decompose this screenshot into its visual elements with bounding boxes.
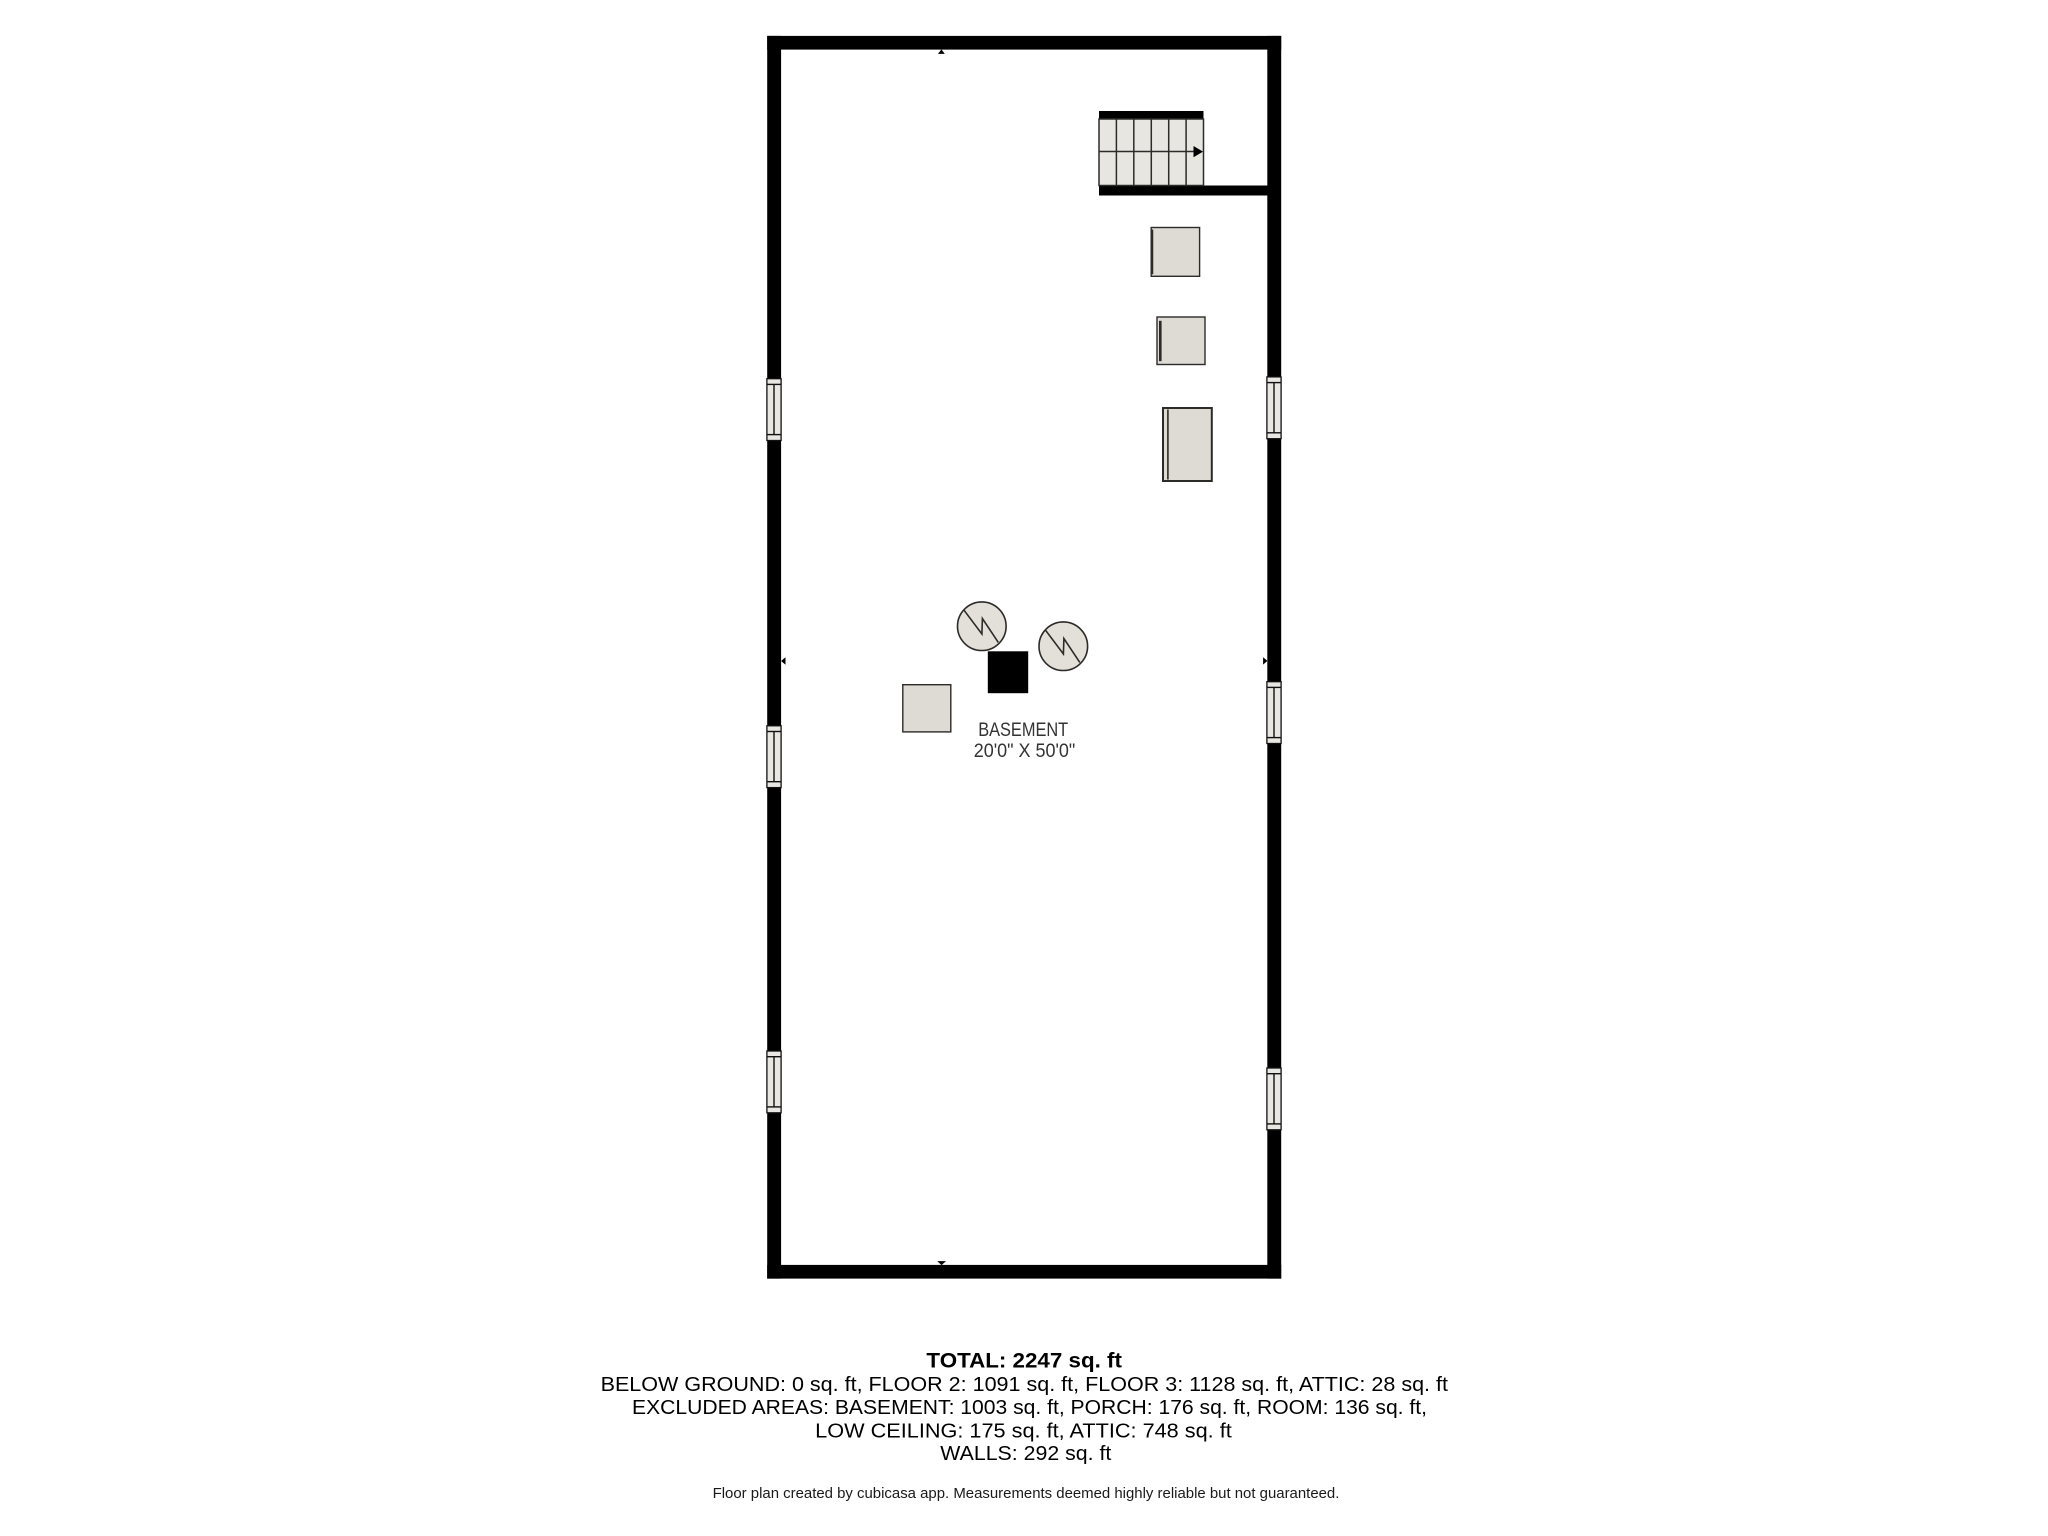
- svg-text:20'0" X 50'0": 20'0" X 50'0": [974, 741, 1076, 762]
- svg-text:BASEMENT: BASEMENT: [978, 720, 1068, 741]
- svg-text:EXCLUDED AREAS: BASEMENT: 1003: EXCLUDED AREAS: BASEMENT: 1003 sq. ft, P…: [632, 1396, 1427, 1419]
- svg-text:LOW CEILING: 175 sq. ft, ATTIC: LOW CEILING: 175 sq. ft, ATTIC: 748 sq. …: [815, 1420, 1232, 1443]
- svg-text:WALLS: 292 sq. ft: WALLS: 292 sq. ft: [940, 1442, 1111, 1465]
- svg-text:TOTAL: 2247 sq. ft: TOTAL: 2247 sq. ft: [926, 1350, 1122, 1373]
- svg-text:BELOW GROUND: 0 sq. ft, FLOOR: BELOW GROUND: 0 sq. ft, FLOOR 2: 1091 sq…: [601, 1373, 1449, 1396]
- svg-text:Floor plan created by cubicasa: Floor plan created by cubicasa app. Meas…: [713, 1485, 1340, 1502]
